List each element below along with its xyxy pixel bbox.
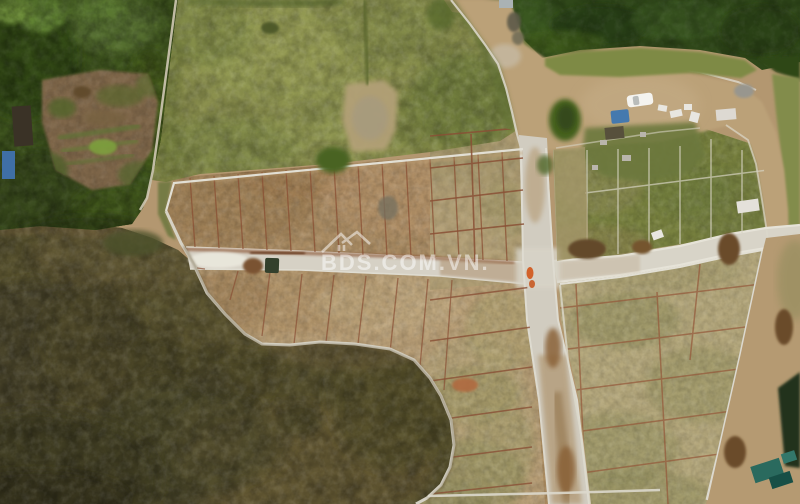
- svg-text:BDS.COM.VN.: BDS.COM.VN.: [321, 250, 490, 275]
